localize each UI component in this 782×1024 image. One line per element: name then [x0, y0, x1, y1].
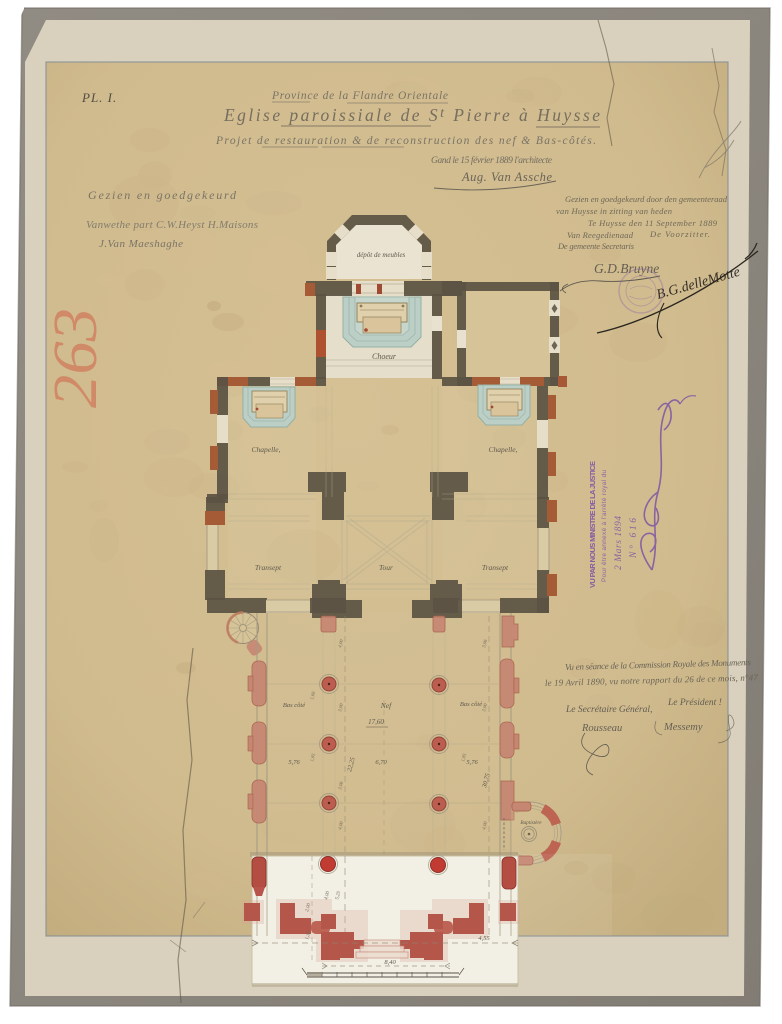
svg-text:Tour: Tour — [379, 563, 393, 572]
svg-text:5,76: 5,76 — [466, 759, 478, 766]
svg-text:17,60: 17,60 — [368, 718, 384, 726]
svg-text:dépôt de meubles: dépôt de meubles — [357, 251, 406, 259]
svg-text:Province de la Flandre Orienta: Province de la Flandre Orientale — [271, 90, 448, 102]
svg-text:Gezien en goedgekeurd door den: Gezien en goedgekeurd door den gemeenter… — [565, 194, 728, 204]
svg-text:263: 263 — [42, 308, 110, 408]
svg-text:Van Reegedienaad: Van Reegedienaad — [567, 230, 634, 240]
svg-text:Pour être annexé à l'arrêté ro: Pour être annexé à l'arrêté royal du — [601, 470, 608, 582]
svg-text:2 Mars 1894: 2 Mars 1894 — [614, 516, 624, 570]
svg-text:Transept: Transept — [255, 563, 282, 572]
svg-text:Gand le 15 février 1889 l'arch: Gand le 15 février 1889 l'architecte — [431, 155, 552, 166]
svg-text:Rousseau: Rousseau — [581, 723, 622, 734]
svg-text:Baptistère: Baptistère — [520, 820, 542, 826]
svg-text:J.Van Maeshaghe: J.Van Maeshaghe — [99, 238, 183, 250]
svg-text:Chapelle,: Chapelle, — [252, 445, 281, 454]
svg-text:Aug. Van Assche: Aug. Van Assche — [461, 170, 552, 184]
svg-text:Le Secrétaire Général,: Le Secrétaire Général, — [565, 705, 652, 715]
svg-text:Eglise paroissiale de St Pierr: Eglise paroissiale de St Pierre à Huysse — [223, 105, 600, 125]
svg-text:VU PAR NOUS MINISTRE DE LA JUS: VU PAR NOUS MINISTRE DE LA JUSTICE — [588, 461, 597, 588]
svg-text:Te Huysse den 11 September 188: Te Huysse den 11 September 1889 — [588, 218, 718, 228]
svg-text:Bas côté: Bas côté — [460, 701, 483, 708]
svg-text:Chapelle,: Chapelle, — [489, 445, 518, 454]
svg-text:4,55: 4,55 — [478, 935, 490, 942]
svg-text:Choeur: Choeur — [372, 352, 397, 361]
svg-text:Le Président !: Le Président ! — [667, 698, 722, 708]
svg-text:van Huysse in zitting van hede: van Huysse in zitting van heden — [556, 206, 672, 216]
svg-text:PL. I.: PL. I. — [81, 90, 117, 105]
svg-text:Projet de restauration & de re: Projet de restauration & de reconstructi… — [215, 135, 596, 147]
svg-text:Bas côté: Bas côté — [283, 702, 306, 709]
svg-text:Nef: Nef — [380, 701, 392, 710]
svg-text:5,76: 5,76 — [288, 759, 300, 766]
svg-text:De Voorzitter.: De Voorzitter. — [649, 229, 710, 239]
svg-text:8,40: 8,40 — [384, 959, 396, 966]
svg-text:Vanwethe part C.W.Heyst H.Mai: Vanwethe part C.W.Heyst H.Maisons — [86, 219, 258, 231]
svg-text:6,70: 6,70 — [375, 759, 387, 766]
svg-text:Transept: Transept — [482, 563, 509, 572]
svg-text:Messemy: Messemy — [663, 722, 703, 733]
svg-text:De gemeente Secretaris: De gemeente Secretaris — [557, 241, 635, 251]
